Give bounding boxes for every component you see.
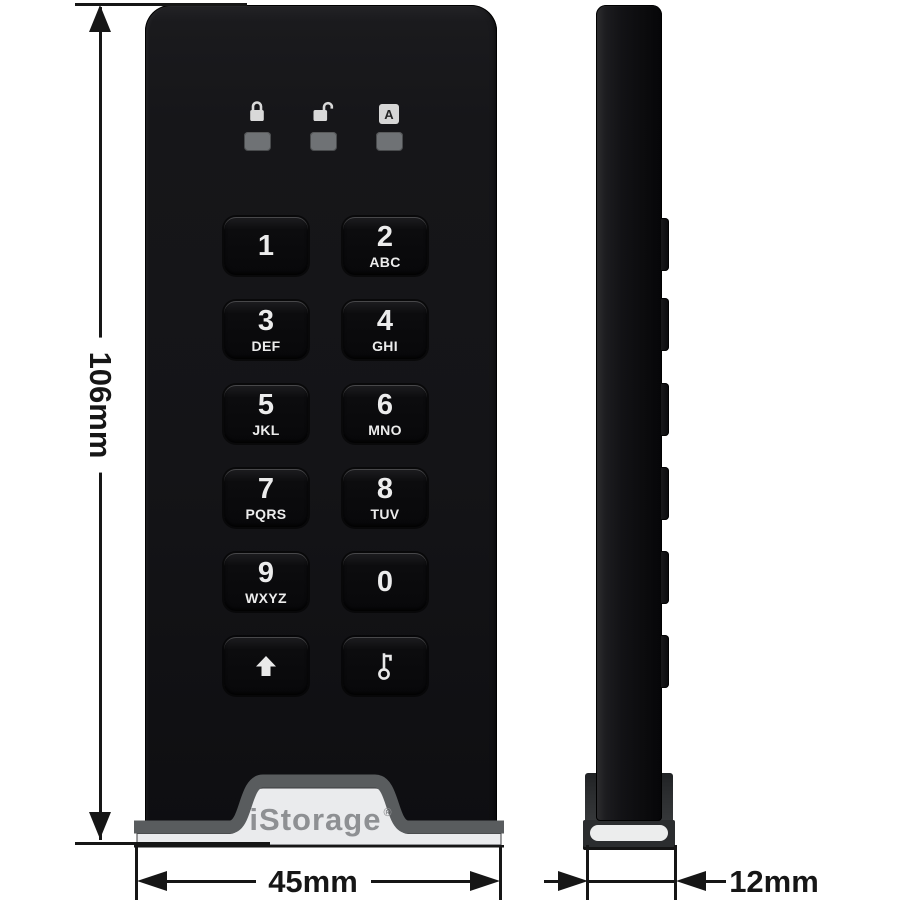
height-dimension-label: 106mm <box>80 338 120 473</box>
key-9: 9 WXYZ <box>224 553 308 611</box>
indicator-auto: A <box>372 98 406 151</box>
arrow-left-icon <box>137 871 167 891</box>
unlock-icon <box>311 98 335 124</box>
arrow-right-icon <box>558 871 588 891</box>
side-key-bump <box>660 218 669 271</box>
istorage-logo: iStorage® <box>249 802 392 837</box>
key-shift <box>224 637 308 695</box>
keypad: 1 2 ABC 3 DEF 4 GHI 5 JKL 6 MNO <box>224 217 427 695</box>
arrow-right-icon <box>470 871 500 891</box>
side-key-bump <box>660 298 669 351</box>
key-8: 8 TUV <box>343 469 427 527</box>
key-7: 7 PQRS <box>224 469 308 527</box>
product-dimension-diagram: A 1 2 ABC 3 DEF 4 GHI 5 <box>0 0 900 900</box>
key-unlock <box>343 637 427 695</box>
key-1: 1 <box>224 217 308 275</box>
arrow-down-icon <box>89 812 111 839</box>
shift-arrow-icon <box>253 653 279 679</box>
key-3: 3 DEF <box>224 301 308 359</box>
key-4: 4 GHI <box>343 301 427 359</box>
device-side-body <box>596 5 662 821</box>
usb-connector-side <box>590 825 668 841</box>
usb-sleeve-front: iStorage® <box>134 755 504 849</box>
depth-dimension-tail-right <box>702 880 726 883</box>
indicator-unlocked <box>306 98 340 151</box>
indicator-locked <box>240 98 274 151</box>
lock-icon <box>247 98 267 124</box>
key-2: 2 ABC <box>343 217 427 275</box>
key-5: 5 JKL <box>224 385 308 443</box>
width-dimension-label: 45mm <box>268 864 358 900</box>
width-dimension-line <box>164 880 256 883</box>
led-indicator-row: A <box>240 98 406 151</box>
led-auto <box>376 132 403 151</box>
led-locked <box>244 132 271 151</box>
arrow-up-icon <box>89 5 111 32</box>
depth-dimension-line <box>589 880 675 883</box>
key-6: 6 MNO <box>343 385 427 443</box>
side-key-bump <box>660 467 669 520</box>
depth-dimension-label: 12mm <box>729 864 819 900</box>
extension-line-bottom <box>75 842 270 845</box>
side-key-bump <box>660 551 669 604</box>
usb-sleeve-side-base <box>583 820 675 850</box>
letter-a-icon: A <box>379 98 399 124</box>
key-icon <box>374 651 396 681</box>
width-dimension-line <box>371 880 471 883</box>
side-key-bump <box>660 635 669 688</box>
key-0: 0 <box>343 553 427 611</box>
side-view <box>596 5 662 848</box>
front-view: A 1 2 ABC 3 DEF 4 GHI 5 <box>145 5 497 843</box>
side-key-bump <box>660 383 669 436</box>
led-unlocked <box>310 132 337 151</box>
